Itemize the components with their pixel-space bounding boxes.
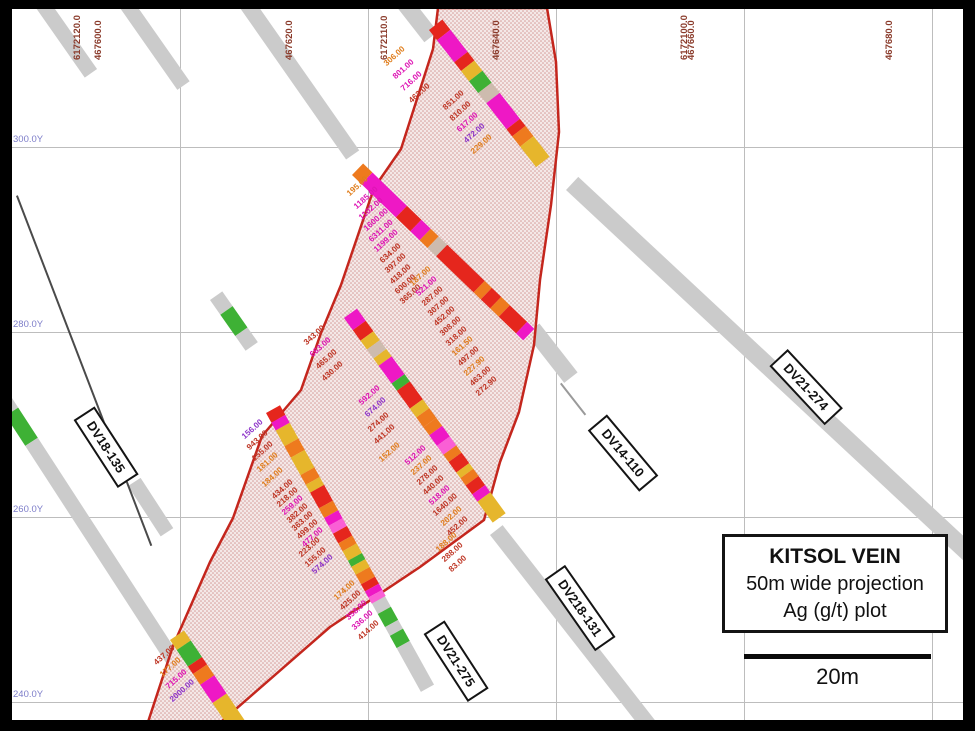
legend-subtitle-projection: 50m wide projection	[725, 573, 945, 596]
easting-axis-label: 467620.0	[284, 20, 295, 60]
northing-axis-label: 240.0Y	[13, 689, 43, 700]
easting-axis-label: 6172120.0	[72, 15, 83, 60]
frame-border-right	[963, 0, 975, 731]
legend-subtitle-units: Ag (g/t) plot	[725, 600, 945, 623]
frame-border-left	[0, 0, 12, 731]
legend-title: KITSOL VEIN	[725, 545, 945, 569]
kitsol-vein-section-plot: KITSOL VEIN 50m wide projection Ag (g/t)…	[0, 0, 975, 731]
scale-bar	[744, 654, 931, 659]
legend-box: KITSOL VEIN 50m wide projection Ag (g/t)…	[722, 534, 948, 633]
frame-border-top	[0, 0, 975, 9]
easting-axis-label: 6172110.0	[379, 16, 390, 60]
northing-axis-label: 280.0Y	[13, 319, 43, 330]
frame-border-bottom	[0, 720, 975, 731]
northing-axis-label: 260.0Y	[13, 504, 43, 515]
northing-axis-label: 300.0Y	[13, 134, 43, 145]
easting-axis-label: 467680.0	[884, 20, 895, 60]
scale-bar-label: 20m	[744, 664, 931, 690]
easting-axis-label: 467660.0	[686, 20, 697, 60]
easting-axis-label: 467600.0	[93, 20, 104, 60]
easting-axis-label: 467640.0	[491, 20, 502, 60]
